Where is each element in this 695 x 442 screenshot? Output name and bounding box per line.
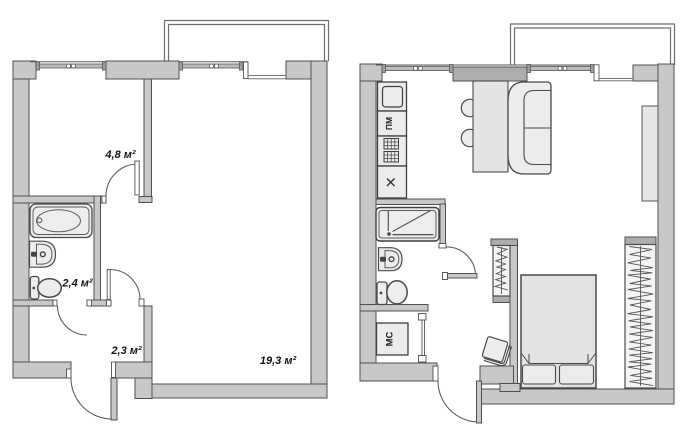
svg-text:4,8 м²: 4,8 м²	[104, 149, 135, 161]
svg-text:МС: МС	[385, 331, 396, 346]
svg-text:2,3 м²: 2,3 м²	[110, 345, 141, 357]
svg-text:ПМ: ПМ	[384, 117, 394, 130]
svg-text:2,4 м²: 2,4 м²	[61, 278, 92, 290]
svg-text:19,3 м²: 19,3 м²	[260, 355, 297, 367]
